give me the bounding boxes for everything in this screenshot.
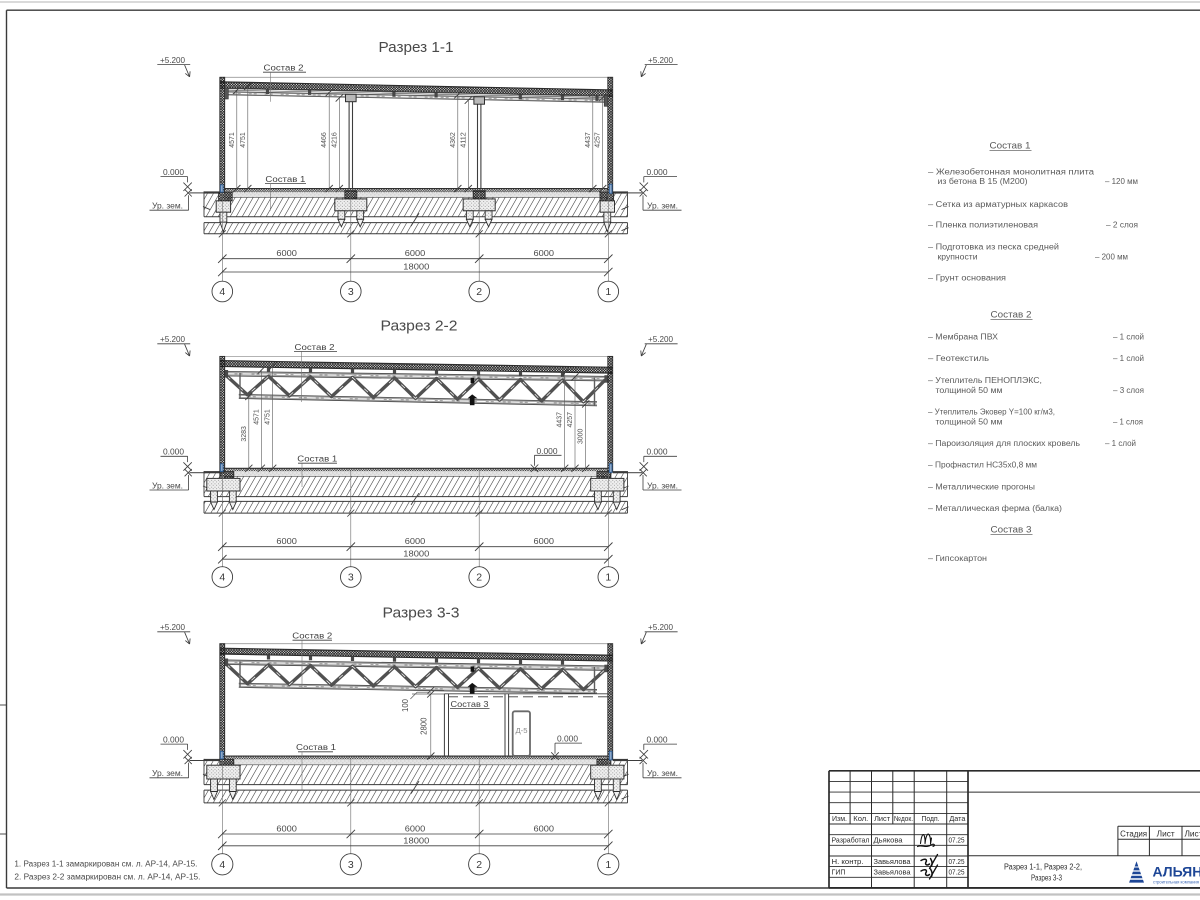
svg-text:1. Разрез 1-1 замаркирован см.: 1. Разрез 1-1 замаркирован см. л. АР-14,…	[14, 859, 197, 868]
svg-text:1: 1	[605, 286, 611, 298]
svg-text:0.000: 0.000	[163, 447, 184, 457]
svg-text:6000: 6000	[534, 249, 555, 258]
svg-text:4257: 4257	[593, 132, 602, 148]
svg-text:– Сетка из арматурных каркасов: – Сетка из арматурных каркасов	[928, 200, 1068, 209]
svg-text:4112: 4112	[458, 132, 467, 148]
svg-text:Дата: Дата	[949, 814, 966, 823]
svg-text:– Пароизоляция для плоских кро: – Пароизоляция для плоских кровель	[928, 439, 1080, 448]
svg-text:3000: 3000	[576, 429, 585, 445]
svg-text:Н. контр.: Н. контр.	[832, 857, 864, 866]
svg-text:+5.200: +5.200	[648, 55, 673, 65]
svg-text:АЛЬЯН: АЛЬЯН	[1153, 864, 1200, 880]
svg-text:– Железобетонная монолитная п: – Железобетонная монолитная плита	[928, 168, 1095, 177]
svg-text:6000: 6000	[534, 537, 555, 546]
svg-text:4362: 4362	[448, 132, 457, 148]
svg-text:18000: 18000	[403, 263, 429, 272]
svg-text:Разрез 1-1, Разрез 2-2,: Разрез 1-1, Разрез 2-2,	[1004, 861, 1082, 871]
svg-text:Состав 3: Состав 3	[991, 525, 1032, 535]
svg-text:Лист: Лист	[874, 814, 891, 823]
svg-text:18000: 18000	[403, 836, 429, 845]
svg-text:Состав 1: Состав 1	[297, 454, 337, 464]
svg-text:– Металлические прогоны: – Металлические прогоны	[928, 483, 1035, 492]
svg-text:– Геотекстиль: – Геотекстиль	[928, 354, 989, 363]
svg-text:3: 3	[348, 572, 354, 584]
svg-text:Разрез 1-1: Разрез 1-1	[379, 40, 454, 56]
svg-text:– 1 слой: – 1 слой	[1113, 333, 1144, 342]
svg-text:Состав 1: Состав 1	[296, 742, 336, 752]
svg-text:– Утеплитель Эковер Y=100 кг/м: – Утеплитель Эковер Y=100 кг/м3,	[928, 408, 1055, 417]
svg-text:– 200 мм: – 200 мм	[1095, 253, 1128, 262]
svg-text:3: 3	[348, 286, 354, 298]
svg-text:6000: 6000	[276, 249, 297, 258]
svg-text:Разрез 3-3: Разрез 3-3	[383, 606, 460, 622]
svg-text:0.000: 0.000	[163, 734, 184, 744]
svg-text:– Пленка полиэтиленовая: – Пленка полиэтиленовая	[928, 221, 1038, 230]
svg-text:Состав 1: Состав 1	[990, 141, 1031, 151]
svg-text:– Гипсокартон: – Гипсокартон	[928, 554, 987, 563]
svg-text:0.000: 0.000	[537, 446, 558, 456]
svg-text:– Грунт основания: – Грунт основания	[928, 274, 1006, 283]
svg-text:6000: 6000	[405, 825, 426, 834]
svg-text:Завьялова: Завьялова	[874, 868, 912, 877]
svg-text:2: 2	[476, 572, 482, 584]
svg-text:– Профнастил НС35х0,8 мм: – Профнастил НС35х0,8 мм	[928, 461, 1037, 470]
svg-text:Д-5: Д-5	[516, 726, 528, 735]
svg-text:4216: 4216	[329, 132, 338, 148]
svg-text:Ур. зем.: Ур. зем.	[647, 481, 678, 490]
svg-text:– 1 слой: – 1 слой	[1105, 439, 1136, 448]
svg-text:2. Разрез 2-2 замаркирован см.: 2. Разрез 2-2 замаркирован см. л. АР-14,…	[14, 872, 200, 881]
svg-text:№док.: №док.	[894, 814, 913, 823]
svg-text:6000: 6000	[405, 249, 426, 258]
svg-text:4: 4	[219, 572, 225, 584]
svg-text:07.25: 07.25	[949, 836, 965, 845]
svg-text:Лист: Лист	[1157, 829, 1175, 838]
svg-text:+5.200: +5.200	[160, 334, 185, 344]
svg-text:Дьякова: Дьякова	[874, 836, 904, 845]
svg-text:0.000: 0.000	[163, 167, 184, 177]
svg-text:Разрез 2-2: Разрез 2-2	[381, 319, 458, 335]
svg-text:4: 4	[219, 859, 225, 871]
svg-text:4571: 4571	[251, 409, 260, 425]
svg-text:4466: 4466	[319, 132, 328, 148]
svg-text:4437: 4437	[555, 412, 564, 428]
svg-text:6000: 6000	[405, 537, 426, 546]
svg-text:– 3 слоя: – 3 слоя	[1113, 386, 1144, 395]
svg-text:крупности: крупности	[938, 253, 978, 262]
svg-text:4257: 4257	[565, 412, 574, 428]
svg-text:07.25: 07.25	[949, 857, 965, 866]
svg-text:– 1 слой: – 1 слой	[1113, 354, 1144, 363]
svg-text:Стадия: Стадия	[1120, 829, 1147, 838]
svg-text:Ур. зем.: Ур. зем.	[152, 202, 183, 211]
svg-text:Подп.: Подп.	[922, 814, 940, 823]
svg-text:– Утеплитель ПЕНОПЛЭКС,: – Утеплитель ПЕНОПЛЭКС,	[928, 376, 1042, 385]
svg-text:Ур. зем.: Ур. зем.	[152, 481, 183, 490]
svg-text:Состав 2: Состав 2	[295, 342, 335, 352]
svg-text:100: 100	[401, 698, 410, 712]
svg-text:4437: 4437	[583, 132, 592, 148]
svg-text:0.000: 0.000	[647, 734, 668, 744]
svg-text:Разрез 3-3: Разрез 3-3	[1031, 873, 1062, 883]
svg-text:– Подготовка из песка средней: – Подготовка из песка средней	[928, 243, 1059, 252]
svg-text:2: 2	[476, 859, 482, 871]
svg-text:Состав 2: Состав 2	[264, 63, 304, 73]
svg-text:1: 1	[605, 859, 611, 871]
svg-text:+5.200: +5.200	[648, 334, 673, 344]
svg-text:– 1 слоя: – 1 слоя	[1113, 418, 1143, 427]
svg-text:+5.200: +5.200	[648, 622, 673, 632]
svg-text:Ур. зем.: Ур. зем.	[647, 202, 678, 211]
svg-text:Кол.: Кол.	[853, 814, 868, 823]
svg-text:4571: 4571	[227, 132, 236, 148]
svg-text:Состав 1: Состав 1	[265, 174, 305, 184]
svg-text:Ур. зем.: Ур. зем.	[152, 769, 183, 778]
svg-text:3283: 3283	[239, 426, 248, 442]
svg-text:3: 3	[348, 859, 354, 871]
svg-text:Ур. зем.: Ур. зем.	[647, 769, 678, 778]
svg-text:2800: 2800	[420, 717, 429, 735]
svg-text:18000: 18000	[403, 550, 429, 559]
svg-text:Разработал: Разработал	[832, 836, 870, 845]
svg-text:4751: 4751	[238, 132, 247, 148]
svg-text:0.000: 0.000	[647, 167, 668, 177]
svg-text:Завьялова: Завьялова	[874, 857, 912, 866]
svg-text:Изм.: Изм.	[832, 814, 847, 823]
svg-text:2: 2	[476, 286, 482, 298]
svg-text:толщиной 50 мм: толщиной 50 мм	[936, 386, 1003, 395]
svg-text:+5.200: +5.200	[160, 622, 185, 632]
svg-text:ГИП: ГИП	[832, 868, 846, 877]
svg-text:6000: 6000	[534, 825, 555, 834]
svg-text:0.000: 0.000	[647, 447, 668, 457]
svg-text:толщиной 50 мм: толщиной 50 мм	[936, 418, 1003, 427]
svg-text:4: 4	[219, 286, 225, 298]
svg-text:0.000: 0.000	[557, 734, 578, 744]
svg-text:Состав 3: Состав 3	[451, 699, 489, 709]
svg-text:4751: 4751	[263, 409, 272, 425]
svg-text:1: 1	[605, 572, 611, 584]
svg-text:07.25: 07.25	[949, 868, 965, 877]
svg-text:Состав 2: Состав 2	[292, 631, 332, 641]
svg-text:– Мембрана ПВХ: – Мембрана ПВХ	[928, 333, 999, 342]
svg-text:6000: 6000	[276, 537, 297, 546]
svg-text:из бетона В 15 (М200): из бетона В 15 (М200)	[938, 177, 1028, 186]
svg-text:– 2 слоя: – 2 слоя	[1106, 221, 1138, 230]
svg-text:– Металлическая ферма (балка): – Металлическая ферма (балка)	[928, 504, 1062, 513]
svg-text:Лист: Лист	[1185, 829, 1200, 838]
svg-text:+5.200: +5.200	[160, 55, 185, 65]
svg-text:Состав 2: Состав 2	[991, 310, 1032, 320]
svg-text:– 120 мм: – 120 мм	[1105, 177, 1138, 186]
svg-text:6000: 6000	[276, 825, 297, 834]
svg-text:строительная компания: строительная компания	[1153, 879, 1199, 884]
